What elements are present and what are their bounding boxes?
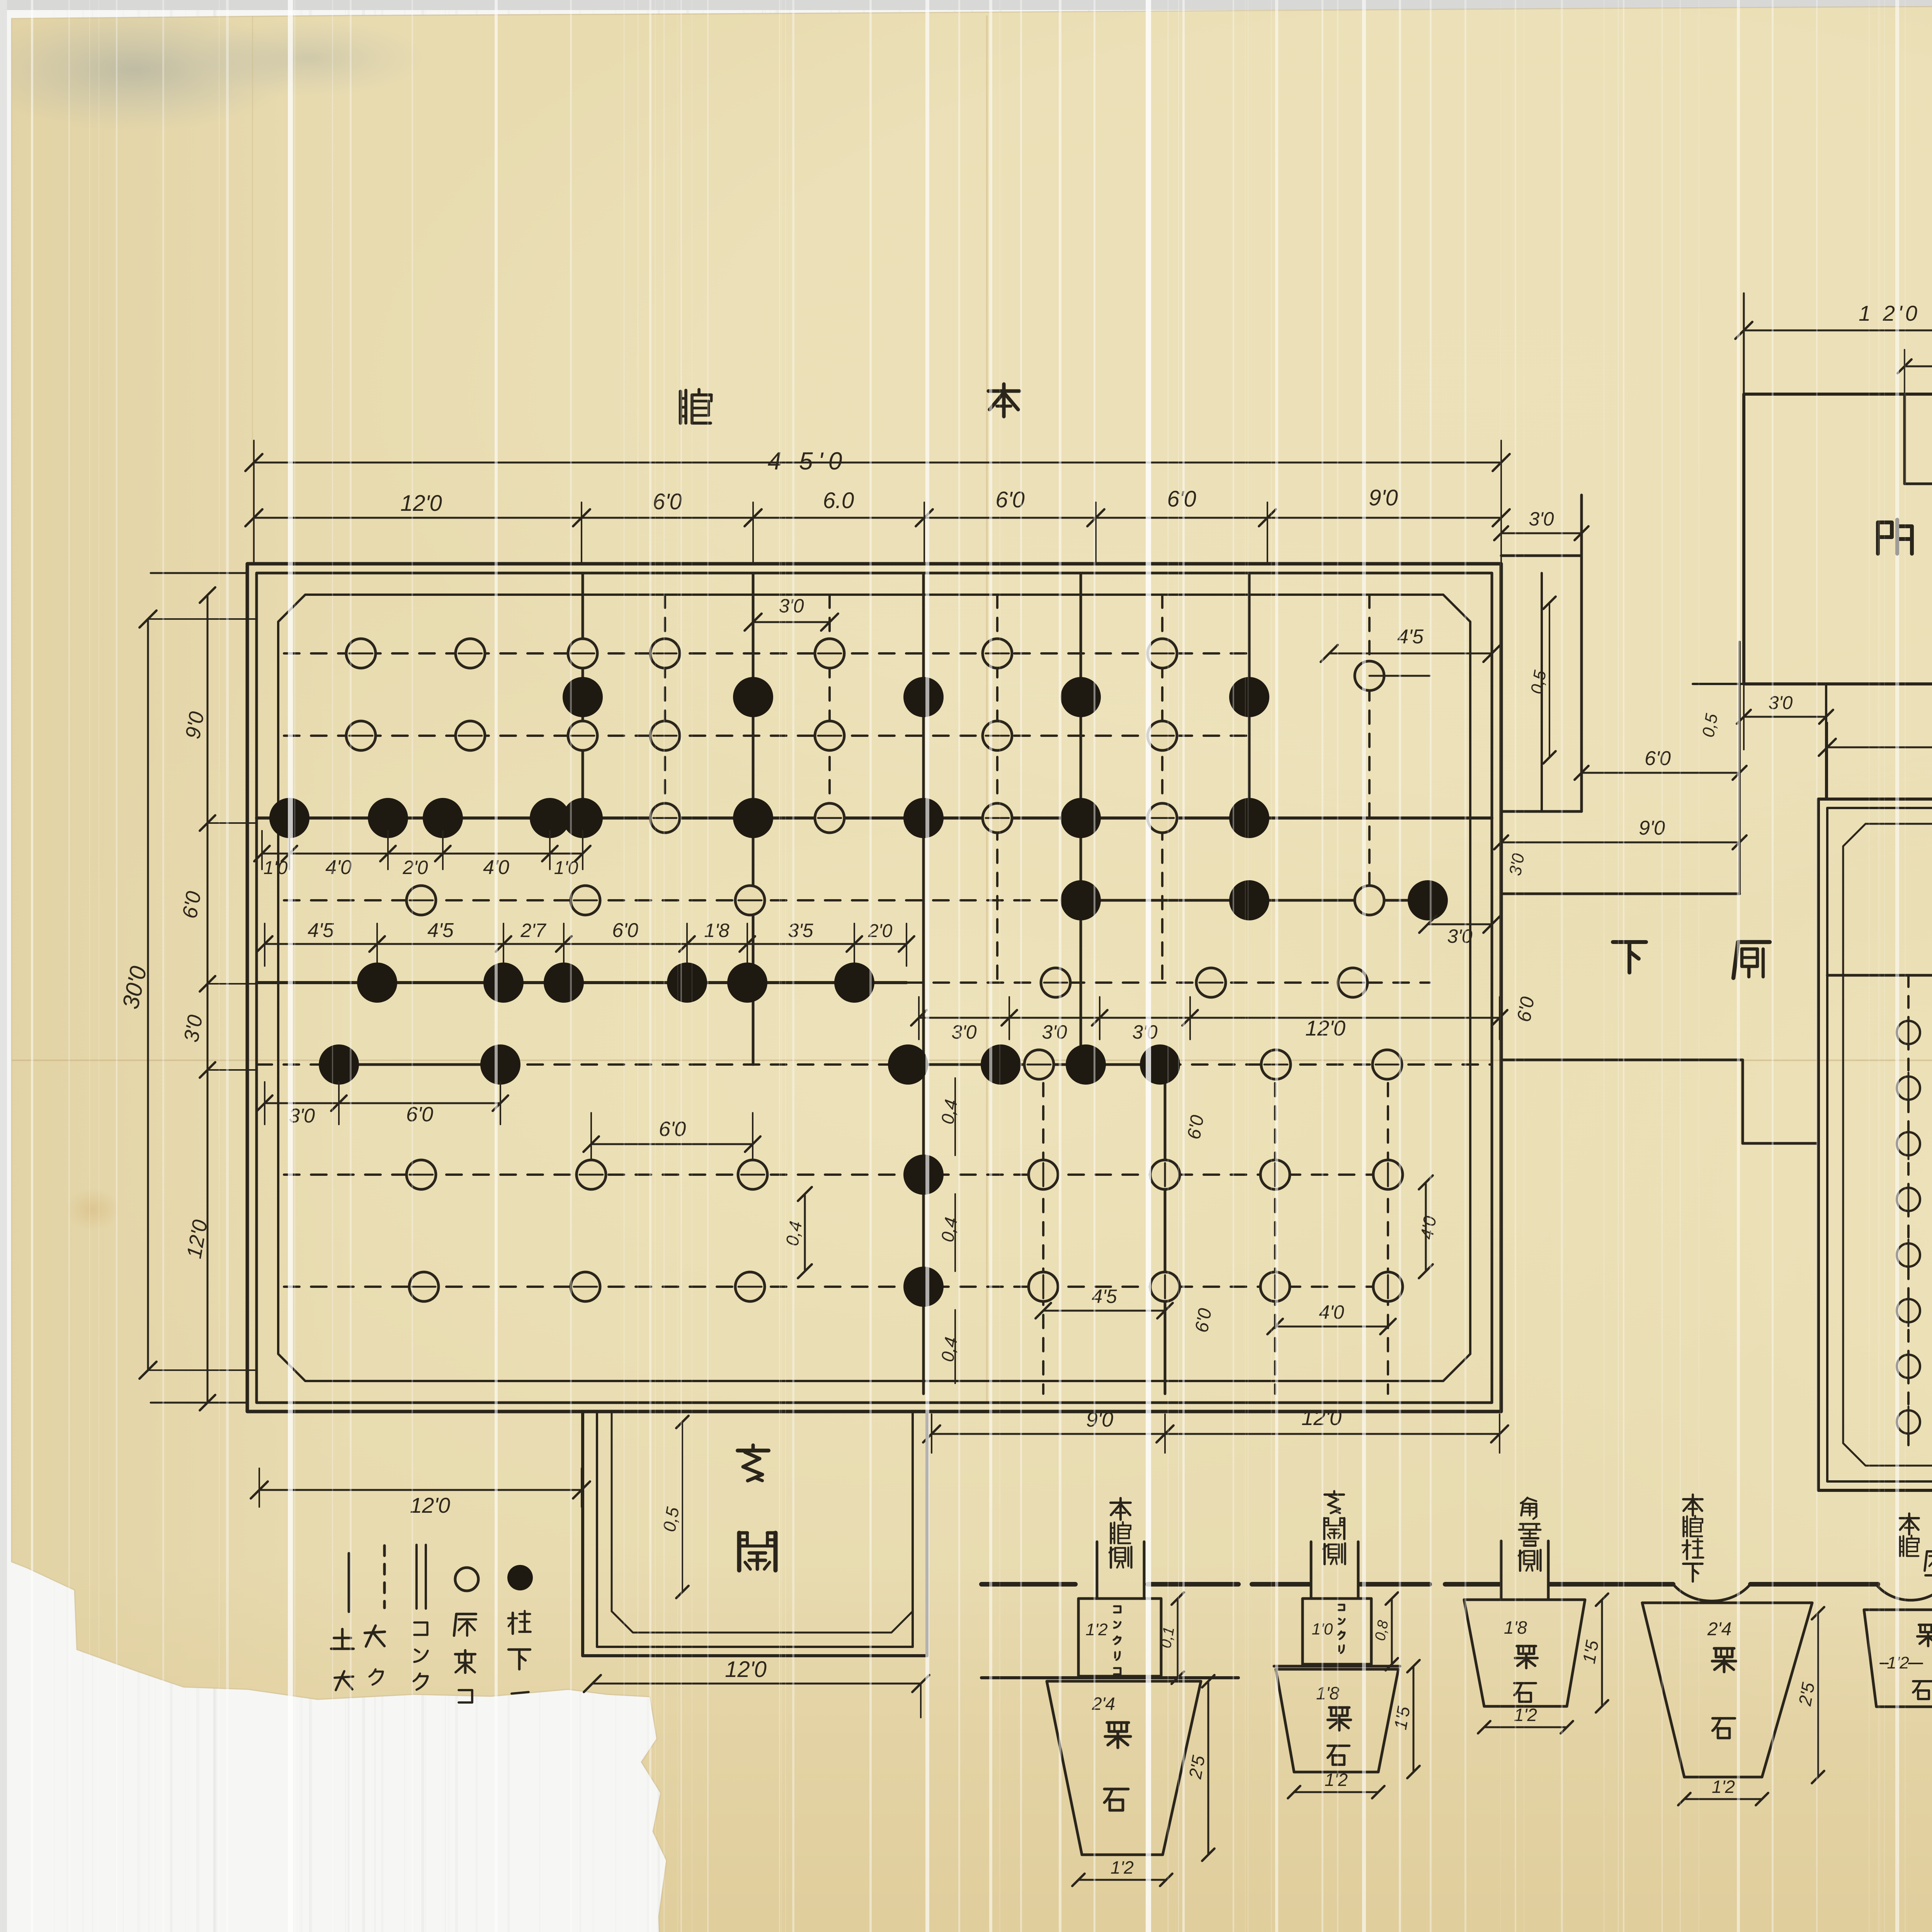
svg-text:9'0: 9'0 [181,710,209,741]
svg-text:12'0: 12'0 [400,491,442,516]
svg-text:1 2'0: 1 2'0 [1859,301,1920,325]
svg-text:2'0: 2'0 [402,857,428,878]
svg-text:9'0: 9'0 [1369,485,1398,510]
svg-text:4'0: 4'0 [1416,1214,1440,1241]
svg-text:0,4: 0,4 [937,1216,961,1243]
svg-text:1'2: 1'2 [1111,1857,1134,1878]
svg-text:6'0: 6'0 [1167,486,1196,512]
svg-text:3'0: 3'0 [951,1021,976,1043]
svg-text:1'2: 1'2 [1712,1777,1735,1797]
svg-text:6'0: 6'0 [1191,1307,1216,1334]
svg-text:4'5: 4'5 [427,919,454,942]
svg-text:3'0: 3'0 [1447,925,1472,947]
svg-text:6'0: 6'0 [1184,1114,1208,1141]
svg-text:2'7: 2'7 [520,920,546,941]
svg-text:0,4: 0,4 [937,1098,961,1126]
svg-text:12'0: 12'0 [1305,1016,1345,1040]
svg-text:6'0: 6'0 [1513,995,1538,1024]
svg-text:3'0: 3'0 [1132,1021,1157,1043]
svg-text:1'2: 1'2 [1085,1620,1107,1639]
svg-text:12'0: 12'0 [725,1657,767,1682]
svg-text:9'0: 9'0 [1639,817,1665,839]
svg-text:4'5: 4'5 [1092,1286,1117,1307]
svg-text:1'0: 1'0 [554,858,578,878]
svg-text:1'5: 1'5 [1578,1639,1602,1665]
svg-text:0,4: 0,4 [937,1335,961,1363]
svg-text:1'2: 1'2 [1514,1705,1537,1725]
svg-text:1'8: 1'8 [1316,1683,1339,1703]
svg-text:0,5: 0,5 [659,1505,683,1533]
svg-text:3'0: 3'0 [1529,508,1554,530]
svg-text:6'0: 6'0 [612,919,638,942]
svg-text:4'5: 4'5 [308,919,334,942]
svg-text:6'0: 6'0 [1645,747,1671,770]
svg-text:3'5: 3'5 [788,920,813,941]
svg-text:6'0: 6'0 [178,889,206,920]
svg-text:1'2: 1'2 [1325,1770,1348,1790]
svg-text:3'0: 3'0 [180,1013,207,1044]
svg-text:12'0: 12'0 [410,1493,450,1517]
svg-text:4'0: 4'0 [325,856,352,879]
svg-text:2'5: 2'5 [1185,1754,1209,1781]
svg-text:4'5: 4'5 [1397,626,1424,648]
svg-text:3'0: 3'0 [1042,1021,1067,1043]
svg-text:2'4: 2'4 [1707,1619,1732,1639]
svg-text:1'0: 1'0 [264,858,288,878]
svg-text:9'0: 9'0 [1086,1408,1113,1431]
svg-text:3'0: 3'0 [1506,852,1528,877]
svg-text:6.0: 6.0 [823,488,854,513]
svg-text:6'0: 6'0 [406,1103,433,1126]
svg-text:3'0: 3'0 [779,595,804,617]
svg-text:2'5: 2'5 [1794,1681,1818,1708]
svg-text:1'5: 1'5 [1390,1705,1414,1731]
